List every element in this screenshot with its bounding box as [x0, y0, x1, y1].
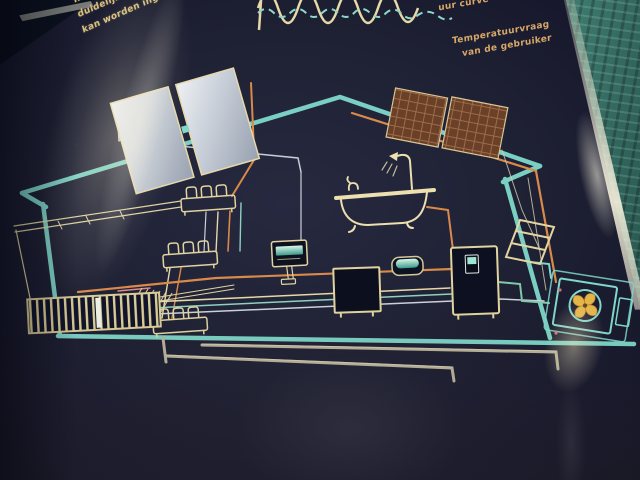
temperature-wave-chart — [258, 0, 452, 30]
smart-thermostat — [392, 256, 424, 276]
tub-rim — [336, 190, 434, 198]
bath-orange-pipe — [427, 207, 453, 250]
pv-panels — [386, 86, 508, 159]
shower-drops — [382, 162, 397, 176]
shower-head-icon — [389, 152, 398, 161]
thermostat-screen — [276, 245, 303, 255]
heating-manifold-upper — [180, 184, 236, 216]
wall-thermostat — [271, 240, 308, 285]
photographed-page: in de onderstaande duidelijk waar een wa… — [0, 0, 640, 480]
demand-dashed-wave — [258, 9, 452, 20]
wall-down-pipe — [16, 230, 30, 298]
bundle-orange — [228, 211, 230, 251]
smart-thermostat-screen — [396, 258, 419, 268]
heating-manifold-lower — [162, 240, 218, 272]
boiler — [451, 246, 499, 320]
bundle-cream — [216, 212, 218, 252]
tub-faucet — [347, 177, 358, 190]
shower-pipe — [397, 155, 412, 189]
indoor-unit — [333, 267, 381, 318]
bathtub-with-shower — [336, 152, 434, 232]
bundle-teal — [240, 203, 241, 251]
bundle-verticals — [204, 212, 206, 252]
valve-dot — [558, 288, 561, 291]
outdoor-temp-wave — [258, 0, 418, 23]
